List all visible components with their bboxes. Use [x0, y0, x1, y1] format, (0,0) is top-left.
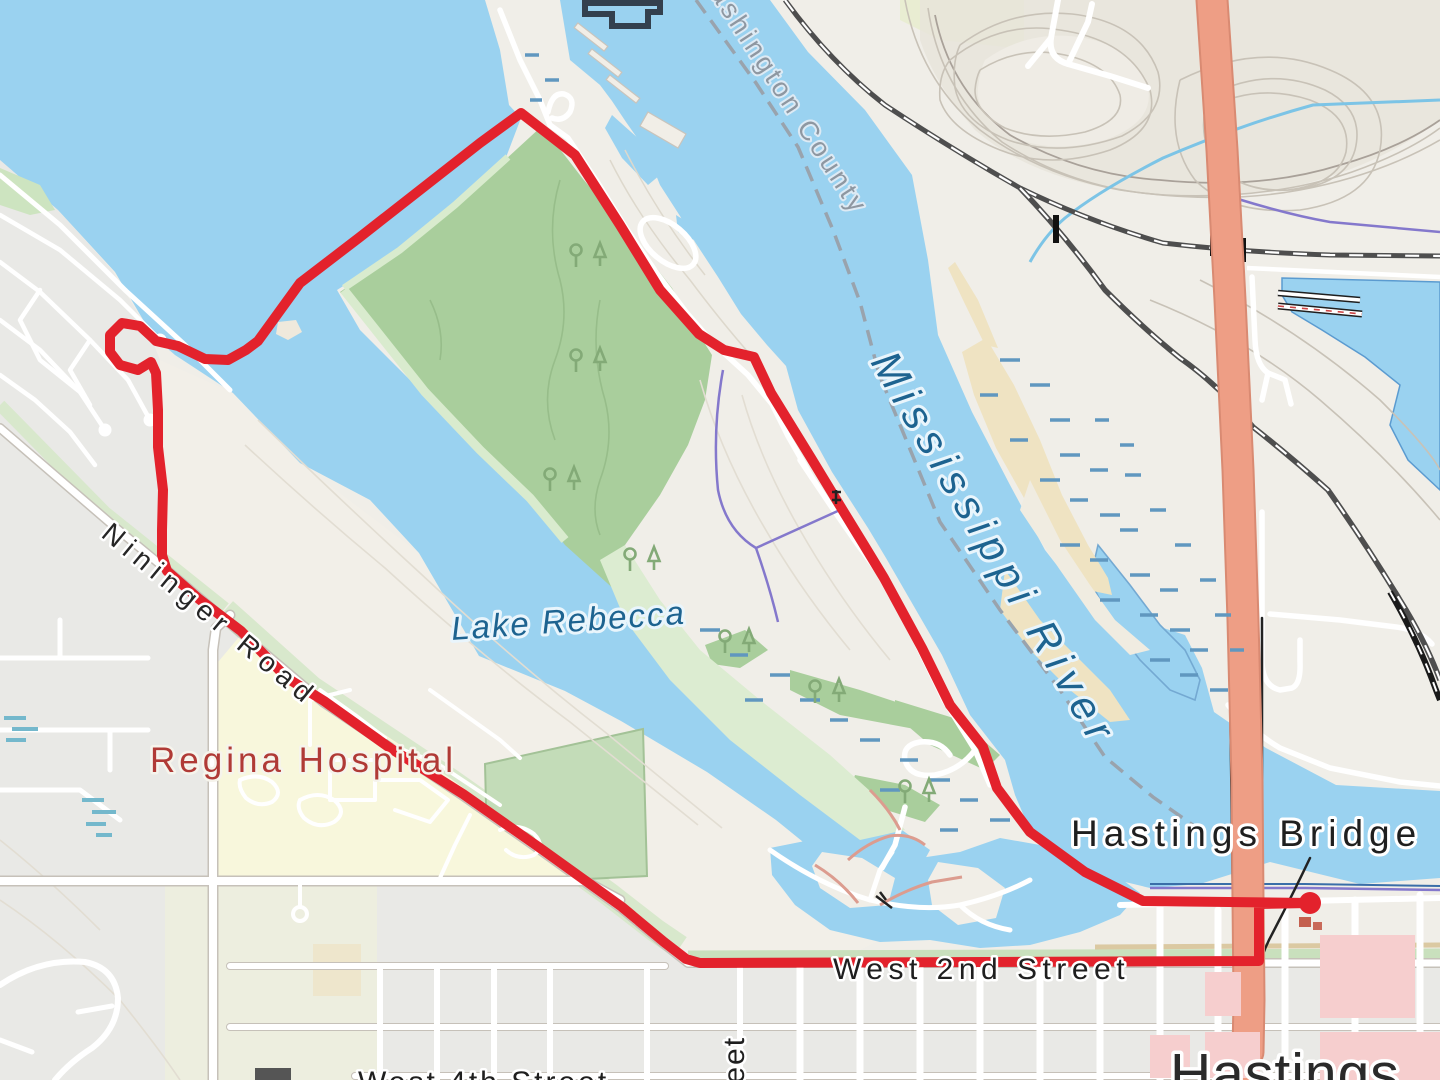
svg-text:West 4th Street: West 4th Street	[358, 1066, 609, 1080]
svg-text:Regina Hospital: Regina Hospital	[150, 741, 457, 780]
svg-text:Hastings: Hastings	[1170, 1042, 1400, 1080]
svg-text:Hastings Bridge: Hastings Bridge	[1071, 813, 1422, 854]
svg-text:Street: Street	[718, 1036, 751, 1080]
svg-text:West 2nd Street: West 2nd Street	[833, 953, 1130, 986]
